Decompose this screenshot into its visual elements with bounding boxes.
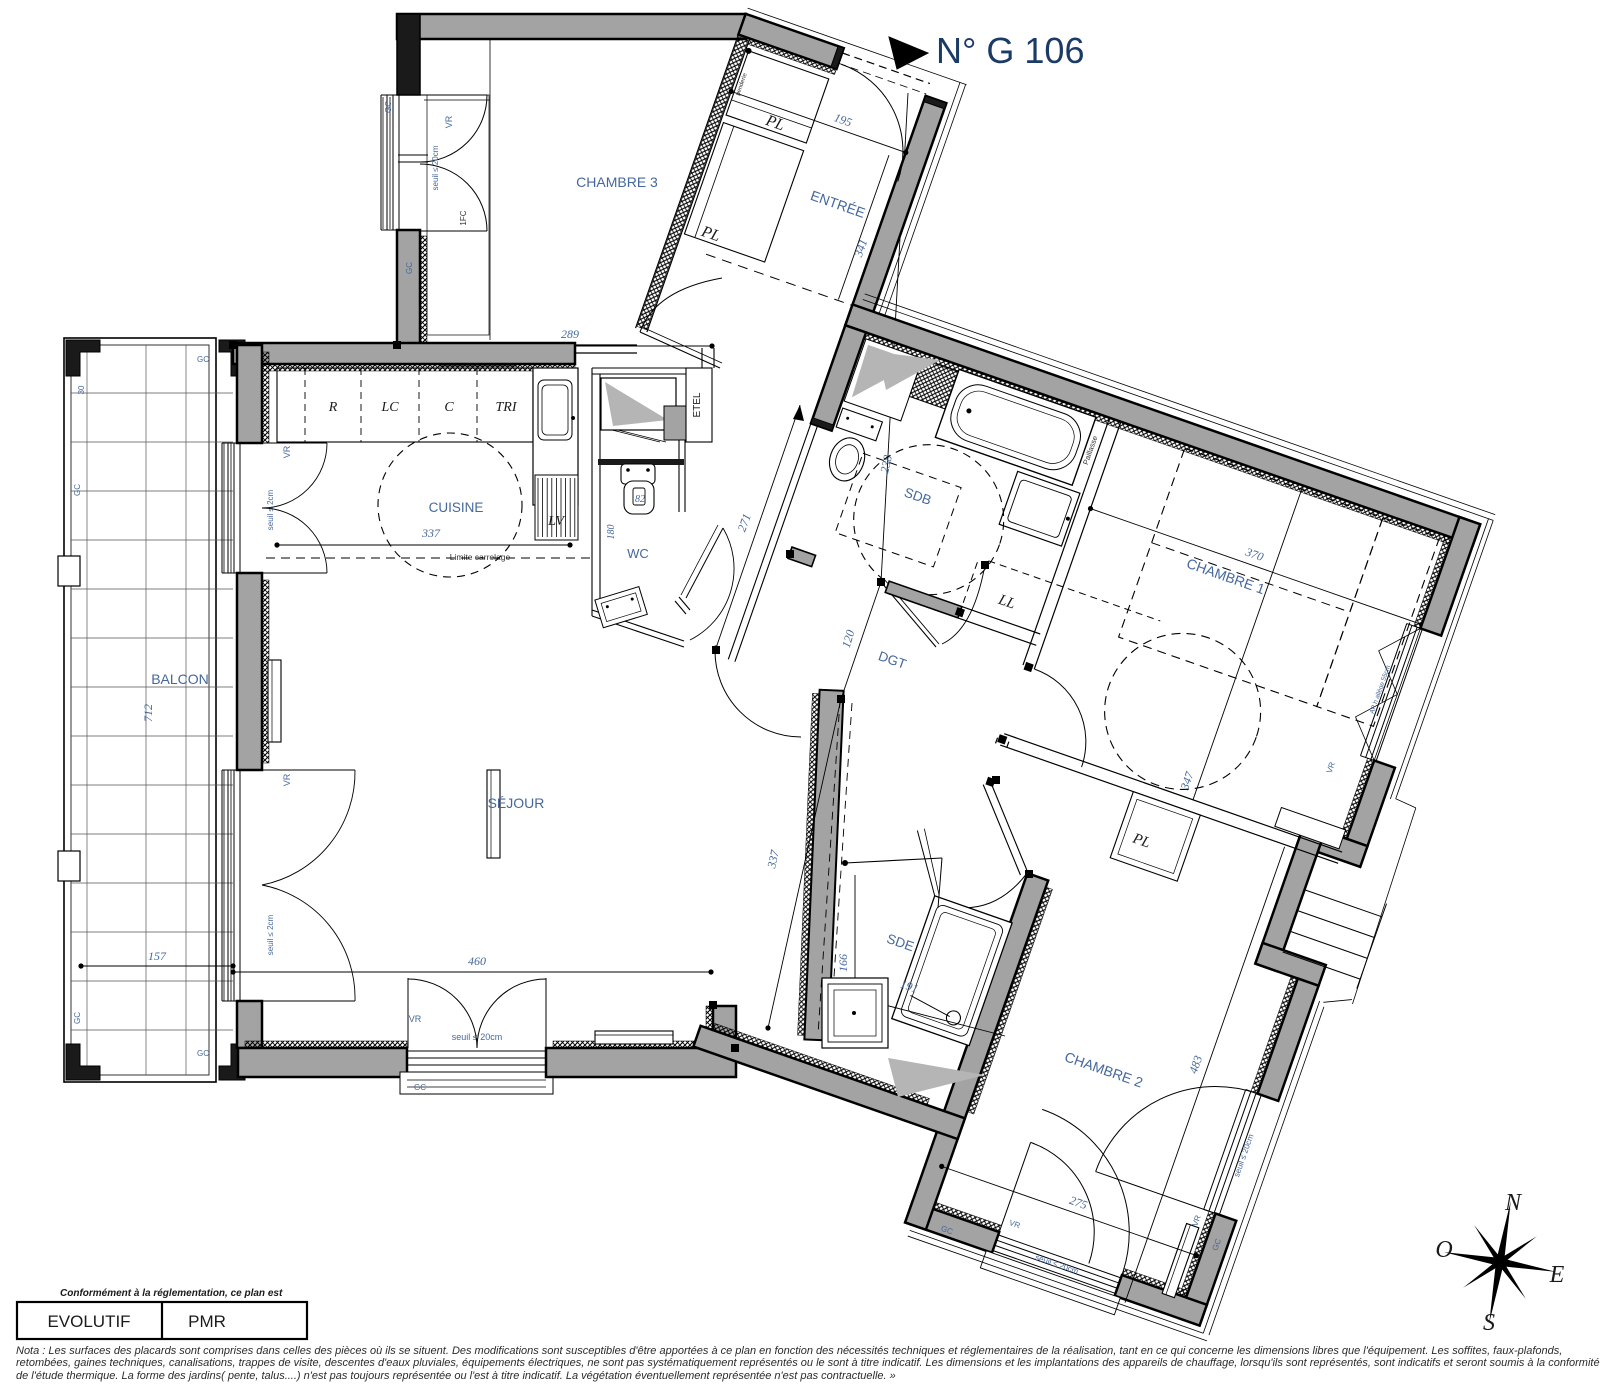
svg-text:GC: GC (414, 1083, 426, 1092)
svg-text:157: 157 (148, 949, 167, 963)
svg-text:PMR: PMR (188, 1312, 226, 1331)
svg-text:R: R (328, 400, 338, 415)
svg-text:GC: GC (73, 484, 82, 496)
svg-text:retombées, gaines techniques,: retombées, gaines techniques, canalisati… (16, 1357, 1600, 1369)
svg-text:C: C (444, 400, 454, 415)
svg-text:SÉJOUR: SÉJOUR (488, 795, 545, 811)
svg-text:VR: VR (282, 445, 292, 458)
svg-text:ETEL: ETEL (692, 392, 703, 417)
svg-text:Conformément à la réglementati: Conformément à la réglementation, ce pla… (60, 1288, 283, 1299)
svg-text:CUISINE: CUISINE (429, 500, 484, 515)
svg-text:712: 712 (141, 704, 155, 722)
svg-text:30: 30 (77, 385, 86, 394)
svg-text:CHAMBRE 3: CHAMBRE 3 (576, 174, 658, 190)
svg-text:TRI: TRI (496, 400, 518, 415)
svg-text:de l'étude thermique. La forme: de l'étude thermique. La forme des jardi… (16, 1370, 896, 1382)
svg-text:N: N (1504, 1190, 1523, 1216)
svg-text:E: E (1549, 1262, 1565, 1288)
svg-text:GC: GC (384, 101, 393, 113)
svg-text:N° G 106: N° G 106 (936, 30, 1084, 71)
svg-text:1FC: 1FC (459, 210, 468, 225)
svg-text:289: 289 (561, 327, 579, 341)
svg-text:Limite carrelage: Limite carrelage (450, 552, 511, 562)
svg-text:460: 460 (468, 954, 486, 968)
svg-text:GC: GC (197, 1049, 209, 1058)
svg-text:seuil ≤ 2cm: seuil ≤ 2cm (266, 489, 275, 530)
svg-text:WC: WC (627, 546, 649, 561)
svg-text:LC: LC (380, 400, 399, 415)
svg-text:GC: GC (73, 1012, 82, 1024)
svg-text:O: O (1435, 1237, 1452, 1263)
svg-text:Nota : Les surfaces des placar: Nota : Les surfaces des placards sont co… (16, 1345, 1562, 1357)
svg-text:VR: VR (282, 773, 292, 786)
svg-text:GC: GC (405, 262, 414, 274)
svg-text:82: 82 (635, 494, 645, 505)
svg-text:180: 180 (606, 525, 617, 540)
svg-text:VR: VR (444, 115, 454, 128)
svg-text:EVOLUTIF: EVOLUTIF (47, 1312, 130, 1331)
svg-text:GC: GC (197, 355, 209, 364)
svg-text:seuil ≤ 20cm: seuil ≤ 20cm (431, 145, 440, 190)
svg-text:S: S (1483, 1310, 1495, 1336)
svg-text:seuil ≤ 2cm: seuil ≤ 2cm (266, 914, 275, 955)
svg-text:337: 337 (421, 526, 441, 540)
svg-text:BALCON: BALCON (151, 671, 209, 687)
svg-text:VR: VR (409, 1014, 422, 1024)
svg-text:166: 166 (836, 954, 850, 972)
svg-text:LV: LV (547, 514, 565, 529)
